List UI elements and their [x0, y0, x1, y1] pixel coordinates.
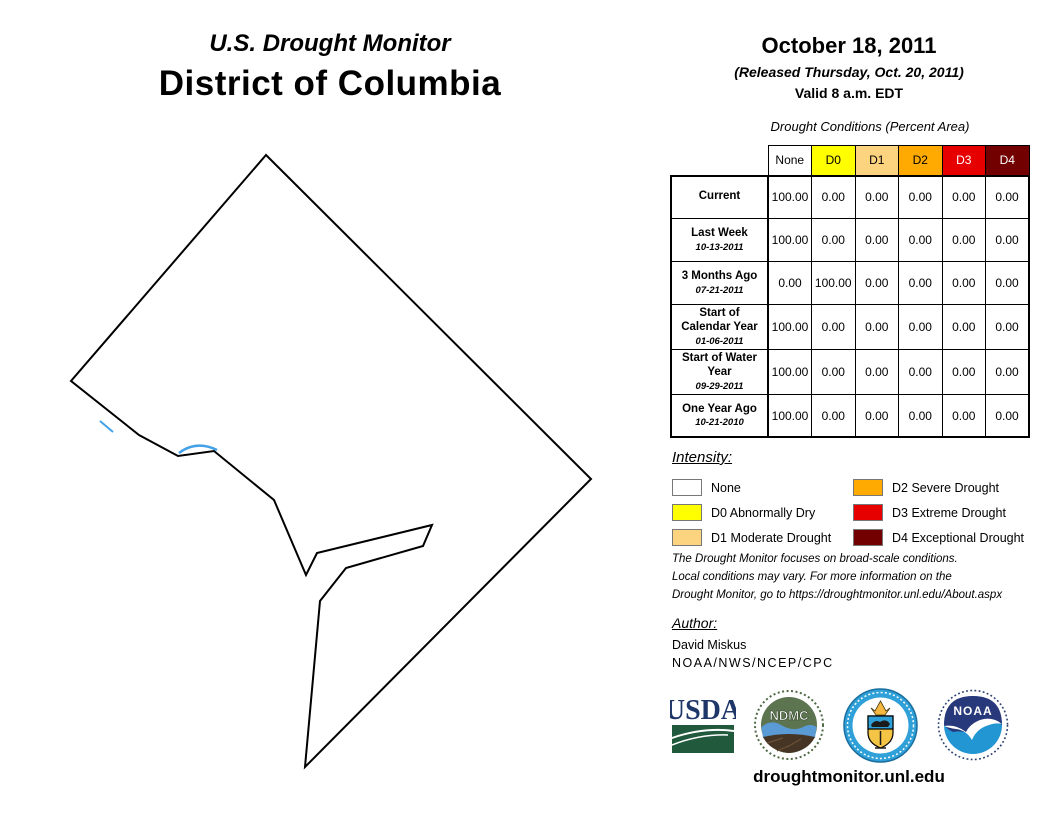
cell-value: 0.00 — [986, 305, 1030, 350]
row-label: One Year Ago 10-21-2010 — [671, 394, 768, 437]
cell-value: 0.00 — [899, 349, 943, 394]
col-header-d0: D0 — [812, 146, 856, 176]
cell-value: 0.00 — [899, 305, 943, 350]
cell-value: 100.00 — [768, 394, 812, 437]
dc-boundary-outline — [71, 155, 591, 767]
col-header-none: None — [768, 146, 812, 176]
row-label: Current — [671, 176, 768, 219]
legend-label: D4 Exceptional Drought — [892, 531, 1024, 545]
col-header-d3: D3 — [942, 146, 986, 176]
row-label: 3 Months Ago 07-21-2011 — [671, 262, 768, 305]
table-row-3-months-ago: 3 Months Ago 07-21-2011 0.00 100.00 0.00… — [671, 262, 1029, 305]
commerce-seal-logo — [842, 687, 919, 764]
ndmc-logo-text: NDMC — [770, 708, 810, 723]
cell-value: 0.00 — [986, 349, 1030, 394]
legend-label: D3 Extreme Drought — [892, 506, 1006, 520]
cell-value: 0.00 — [855, 349, 899, 394]
cell-value: 0.00 — [855, 219, 899, 262]
col-header-d4: D4 — [986, 146, 1030, 176]
row-label-text: 3 Months Ago — [674, 270, 765, 284]
d1-swatch — [672, 529, 702, 546]
potomac-river-dash — [100, 421, 113, 432]
legend-label: D0 Abnormally Dry — [711, 506, 815, 520]
cell-value: 0.00 — [942, 305, 986, 350]
noaa-logo-text: NOAA — [953, 704, 992, 718]
cell-value: 0.00 — [942, 219, 986, 262]
cell-value: 0.00 — [942, 262, 986, 305]
cell-value: 0.00 — [986, 262, 1030, 305]
legend-label: D1 Moderate Drought — [711, 531, 831, 545]
droughtmonitor-url: droughtmonitor.unl.edu — [664, 767, 1034, 787]
table-row-last-week: Last Week 10-13-2011 100.00 0.00 0.00 0.… — [671, 219, 1029, 262]
cell-value: 0.00 — [812, 219, 856, 262]
cell-value: 0.00 — [986, 394, 1030, 437]
row-date: 07-21-2011 — [674, 285, 765, 296]
legend-label: None — [711, 481, 741, 495]
table-corner-cell — [671, 146, 768, 176]
district-of-columbia-map — [0, 0, 660, 816]
cell-value: 0.00 — [899, 262, 943, 305]
row-date: 10-13-2011 — [674, 242, 765, 253]
cell-value: 0.00 — [812, 176, 856, 219]
valid-time: Valid 8 a.m. EDT — [664, 85, 1034, 101]
usda-logo: USDA — [670, 693, 736, 757]
legend-item-d2: D2 Severe Drought — [853, 475, 1032, 500]
row-label-text: Current — [674, 190, 765, 204]
col-header-d2: D2 — [899, 146, 943, 176]
col-header-d1: D1 — [855, 146, 899, 176]
disclaimer-text: The Drought Monitor focuses on broad-sca… — [672, 551, 1052, 604]
cell-value: 100.00 — [768, 349, 812, 394]
table-row-start-water-year: Start of Water Year 09-29-2011 100.00 0.… — [671, 349, 1029, 394]
legend-item-d0: D0 Abnormally Dry — [672, 500, 853, 525]
table-row-current: Current 100.00 0.00 0.00 0.00 0.00 0.00 — [671, 176, 1029, 219]
drought-conditions-table: None D0 D1 D2 D3 D4 Current 100.00 0.00 … — [670, 145, 1030, 438]
cell-value: 0.00 — [986, 176, 1030, 219]
usda-logo-text: USDA — [670, 695, 736, 726]
d4-swatch — [853, 529, 883, 546]
cell-value: 0.00 — [855, 394, 899, 437]
noaa-logo: NOAA — [936, 688, 1010, 762]
cell-value: 0.00 — [899, 176, 943, 219]
cell-value: 100.00 — [812, 262, 856, 305]
table-row-one-year-ago: One Year Ago 10-21-2010 100.00 0.00 0.00… — [671, 394, 1029, 437]
intensity-legend: Intensity: None D0 Abnormally Dry D1 Mod… — [672, 449, 1032, 550]
table-row-start-calendar-year: Start of Calendar Year 01-06-2011 100.00… — [671, 305, 1029, 350]
cell-value: 100.00 — [768, 219, 812, 262]
cell-value: 0.00 — [942, 349, 986, 394]
none-swatch — [672, 479, 702, 496]
ndmc-logo: NDMC — [753, 689, 825, 761]
legend-item-none: None — [672, 475, 853, 500]
row-label-text: Start of Calendar Year — [674, 307, 765, 335]
d0-swatch — [672, 504, 702, 521]
table-header-row: None D0 D1 D2 D3 D4 — [671, 146, 1029, 176]
cell-value: 100.00 — [768, 305, 812, 350]
cell-value: 0.00 — [855, 262, 899, 305]
legend-item-d3: D3 Extreme Drought — [853, 500, 1032, 525]
row-date: 10-21-2010 — [674, 417, 765, 428]
row-label: Last Week 10-13-2011 — [671, 219, 768, 262]
report-date: October 18, 2011 — [664, 33, 1034, 59]
row-date: 09-29-2011 — [674, 381, 765, 392]
d2-swatch — [853, 479, 883, 496]
agency-logos: USDA NDMC NOAA — [670, 687, 1030, 763]
author-heading: Author: — [672, 615, 717, 631]
cell-value: 0.00 — [812, 394, 856, 437]
cell-value: 0.00 — [942, 176, 986, 219]
dc-outline-svg — [0, 0, 660, 816]
released-date: (Released Thursday, Oct. 20, 2011) — [664, 64, 1034, 80]
row-label-text: One Year Ago — [674, 403, 765, 417]
date-header: October 18, 2011 (Released Thursday, Oct… — [664, 33, 1034, 101]
d3-swatch — [853, 504, 883, 521]
cell-value: 100.00 — [768, 176, 812, 219]
cell-value: 0.00 — [942, 394, 986, 437]
row-label: Start of Water Year 09-29-2011 — [671, 349, 768, 394]
cell-value: 0.00 — [855, 176, 899, 219]
author-organization: NOAA/NWS/NCEP/CPC — [672, 656, 834, 670]
row-label-text: Last Week — [674, 227, 765, 241]
row-label-text: Start of Water Year — [674, 352, 765, 380]
legend-item-d4: D4 Exceptional Drought — [853, 525, 1032, 550]
cell-value: 0.00 — [812, 305, 856, 350]
row-label: Start of Calendar Year 01-06-2011 — [671, 305, 768, 350]
legend-grid: None D0 Abnormally Dry D1 Moderate Droug… — [672, 475, 1032, 550]
cell-value: 0.00 — [855, 305, 899, 350]
legend-label: D2 Severe Drought — [892, 481, 999, 495]
cell-value: 0.00 — [899, 394, 943, 437]
table-caption: Drought Conditions (Percent Area) — [670, 119, 1028, 134]
cell-value: 0.00 — [899, 219, 943, 262]
cell-value: 0.00 — [986, 219, 1030, 262]
cell-value: 0.00 — [812, 349, 856, 394]
cell-value: 0.00 — [768, 262, 812, 305]
legend-heading: Intensity: — [672, 449, 1032, 466]
author-name: David Miskus — [672, 638, 746, 652]
row-date: 01-06-2011 — [674, 336, 765, 347]
legend-item-d1: D1 Moderate Drought — [672, 525, 853, 550]
